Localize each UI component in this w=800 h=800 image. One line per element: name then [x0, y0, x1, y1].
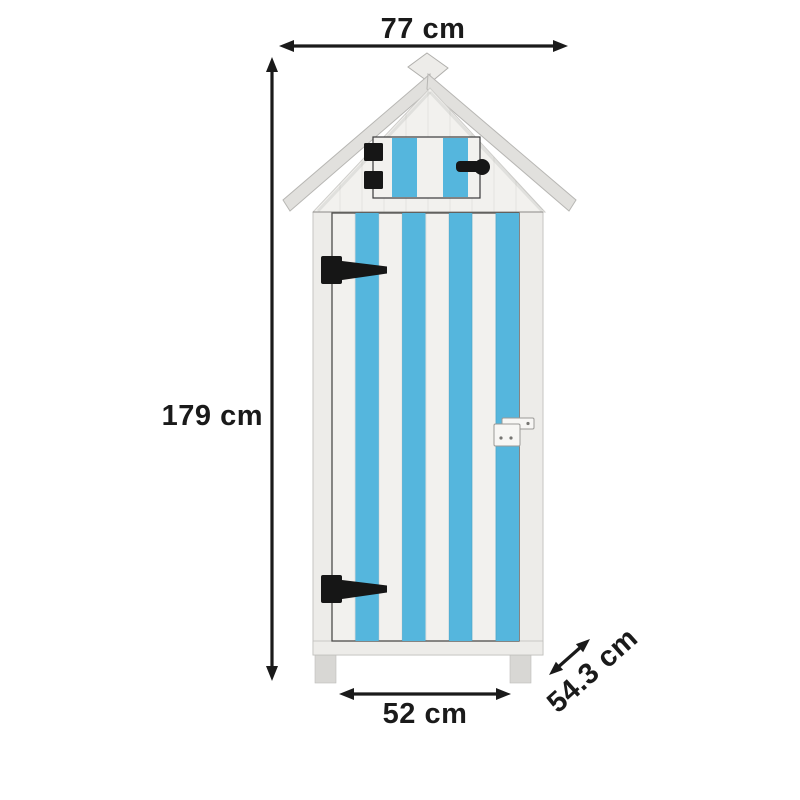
bottom-rail [313, 641, 543, 655]
height-dimension-label: 179 cm [103, 400, 263, 433]
product-dimension-diagram: 77 cm 179 cm 52 cm 54.3 cm [0, 0, 800, 800]
leg-right [510, 655, 531, 683]
gable-window [364, 137, 490, 198]
door-width-dimension-label: 52 cm [345, 698, 505, 731]
window-hinge-bottom-icon [364, 171, 383, 189]
width-dimension-label: 77 cm [343, 13, 503, 46]
height-dimension-arrow [266, 57, 278, 681]
door-stripe-blue [449, 213, 472, 641]
window-stripe-blue [392, 138, 417, 197]
door-stripe-blue [402, 213, 425, 641]
leg-left [315, 655, 336, 683]
window-hinge-top-icon [364, 143, 383, 161]
